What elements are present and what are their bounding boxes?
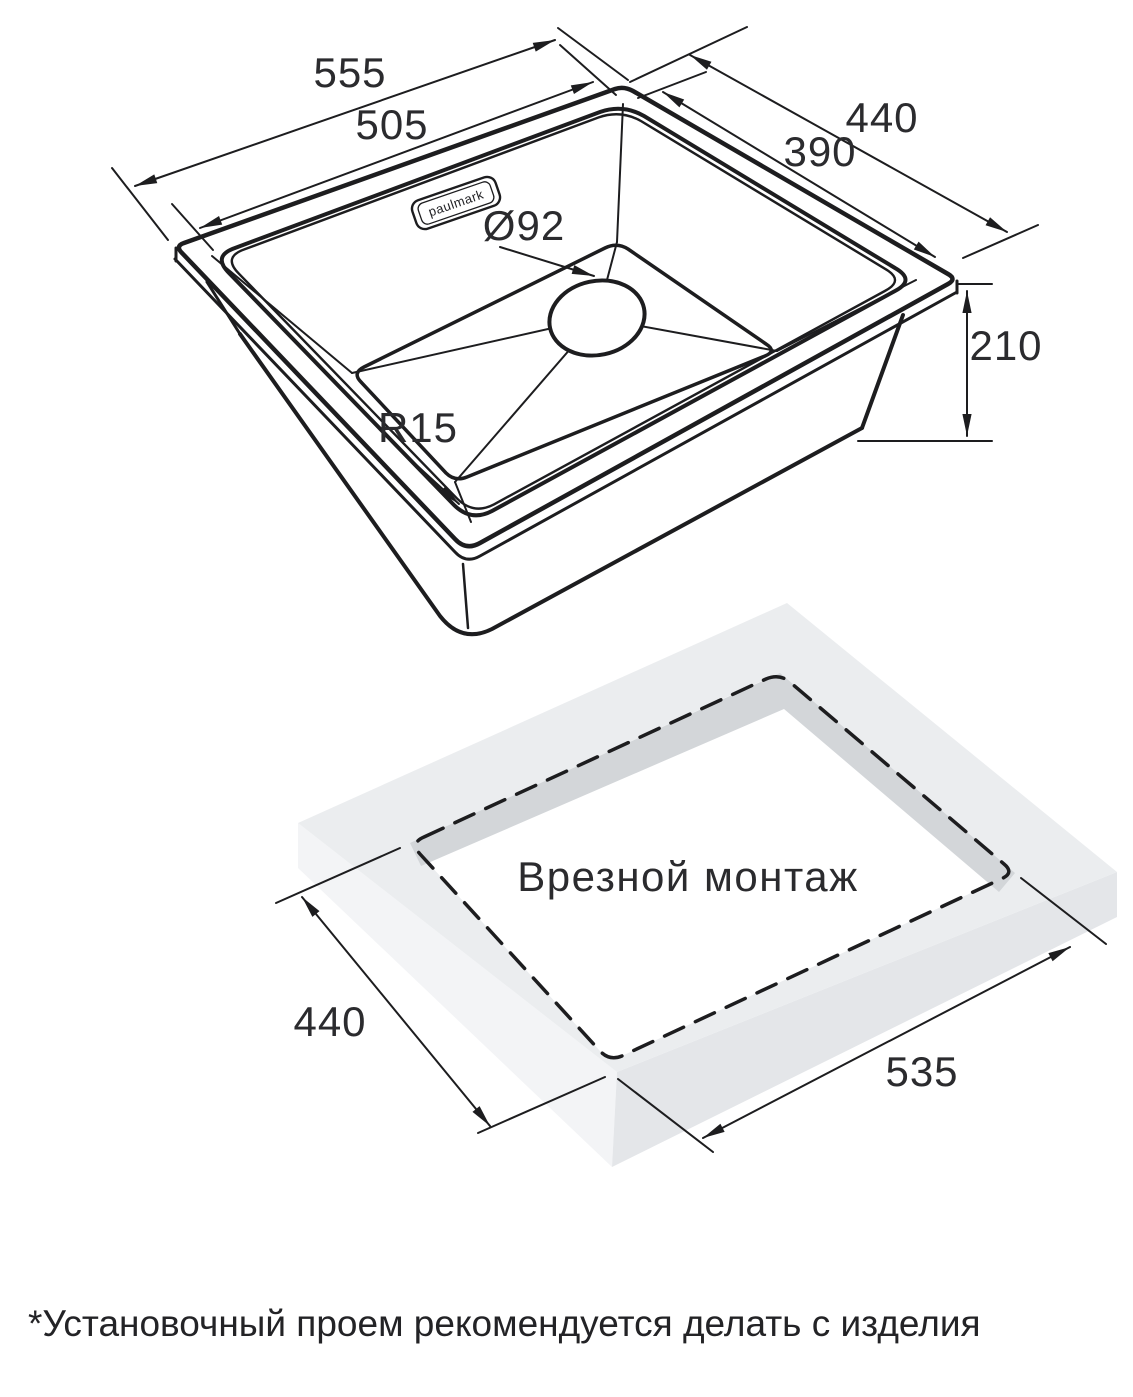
cutout-width-label: 535 bbox=[885, 1051, 958, 1093]
corner-radius-label: R15 bbox=[378, 407, 458, 449]
inner-depth-label: 390 bbox=[783, 131, 856, 173]
mounting-type-title: Врезной монтаж bbox=[517, 856, 858, 898]
installation-footnote: *Установочный проем рекомендуется делать… bbox=[28, 1302, 981, 1346]
outer-width-label: 555 bbox=[313, 52, 386, 94]
drawing-canvas bbox=[0, 0, 1133, 1397]
sink-technical-drawing-page: 555 505 440 390 Ø92 210 R15 paulmark Вре… bbox=[0, 0, 1133, 1397]
cutout-depth-label: 440 bbox=[293, 1001, 366, 1043]
inner-width-label: 505 bbox=[355, 104, 428, 146]
height-label: 210 bbox=[969, 325, 1042, 367]
drain-diameter-label: Ø92 bbox=[483, 205, 565, 247]
